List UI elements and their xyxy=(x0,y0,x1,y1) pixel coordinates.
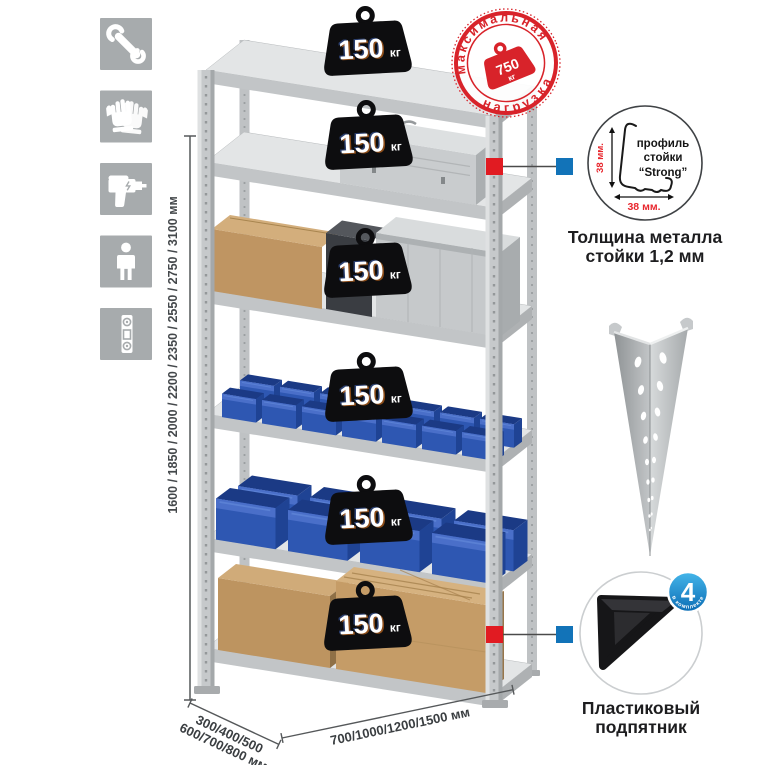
plastic-foot-detail: 4 в комплекте Пластиковый подпятник xyxy=(580,572,708,737)
connector-red-square xyxy=(486,626,503,643)
svg-text:150: 150 xyxy=(339,127,386,159)
svg-text:кг: кг xyxy=(389,45,401,60)
profile-caption: стойки 1,2 мм xyxy=(586,246,705,266)
drill-icon xyxy=(100,163,152,215)
profile-caption: Толщина металла xyxy=(568,227,723,247)
svg-text:кг: кг xyxy=(389,267,401,282)
post-profile-detail: 38 мм. 38 мм. профиль стойки “Strong” То… xyxy=(568,106,723,266)
shelf-load-badge: 150 кг xyxy=(321,6,412,76)
height-dimension: 1600 / 1850 / 2000 / 2200 / 2350 / 2550 … xyxy=(166,136,196,700)
foot-caption: Пластиковый xyxy=(582,698,700,718)
profile-label: “Strong” xyxy=(639,167,688,179)
svg-text:150: 150 xyxy=(338,608,385,640)
connector-blue-square xyxy=(556,158,573,175)
level-icon xyxy=(100,308,152,360)
svg-text:150: 150 xyxy=(338,33,385,65)
depth-dimension: 300/400/500 600/700/800 мм xyxy=(176,698,281,765)
product-infographic: 1600 / 1850 / 2000 / 2200 / 2350 / 2550 … xyxy=(0,0,765,765)
shelf-load-badge: 150 кг xyxy=(322,352,413,422)
height-dimension-label: 1600 / 1850 / 2000 / 2200 / 2350 / 2550 … xyxy=(166,196,180,513)
profile-dim-horizontal: 38 мм. xyxy=(627,201,660,213)
svg-text:150: 150 xyxy=(339,379,386,411)
foot-caption: подпятник xyxy=(595,717,687,737)
svg-text:кг: кг xyxy=(390,139,402,154)
profile-label: профиль xyxy=(637,138,690,150)
svg-text:кг: кг xyxy=(389,620,401,635)
width-dimension-label: 700/1000/1200/1500 мм xyxy=(329,704,471,748)
gloves-icon xyxy=(100,91,152,143)
profile-label: стойки xyxy=(644,152,683,164)
svg-text:4: 4 xyxy=(681,577,696,607)
count-badge: 4 в комплекте xyxy=(668,572,708,612)
width-dimension: 700/1000/1200/1500 мм xyxy=(281,685,517,758)
connector-red-square xyxy=(486,158,503,175)
wrench-icon xyxy=(100,18,152,70)
connector-blue-square xyxy=(556,626,573,643)
svg-text:кг: кг xyxy=(390,514,402,529)
profile-dim-vertical: 38 мм. xyxy=(595,143,606,173)
sidebar-icons xyxy=(100,18,152,360)
shelf-load-badge: 150 кг xyxy=(322,475,413,545)
svg-text:кг: кг xyxy=(390,391,402,406)
post-perspective-illustration xyxy=(609,318,693,556)
svg-text:150: 150 xyxy=(339,502,386,534)
person-icon xyxy=(100,236,152,288)
svg-text:150: 150 xyxy=(338,255,385,287)
